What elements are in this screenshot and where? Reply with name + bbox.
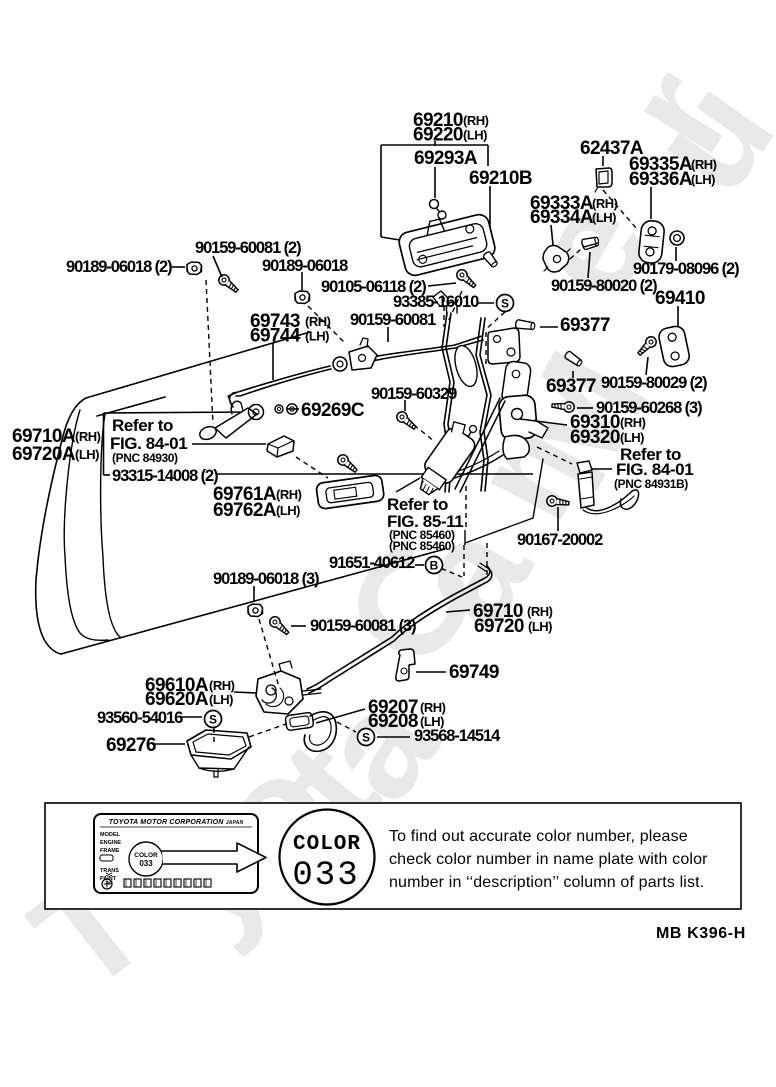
svg-text:69334A: 69334A bbox=[530, 207, 594, 228]
svg-text:69276: 69276 bbox=[106, 735, 156, 756]
svg-text:(LH): (LH) bbox=[75, 447, 99, 462]
svg-text:90189-06018 (3): 90189-06018 (3) bbox=[213, 570, 319, 588]
svg-text:S: S bbox=[362, 731, 370, 745]
svg-text:(PNC 84931B): (PNC 84931B) bbox=[614, 477, 688, 491]
svg-text:69720: 69720 bbox=[474, 616, 524, 637]
svg-text:(LH): (LH) bbox=[592, 210, 616, 225]
svg-text:(RH): (RH) bbox=[463, 113, 489, 128]
svg-text:(LH): (LH) bbox=[209, 692, 233, 707]
svg-text:69620A: 69620A bbox=[145, 689, 209, 710]
svg-text:93560-54016: 93560-54016 bbox=[97, 709, 183, 727]
svg-text:69336A: 69336A bbox=[629, 169, 693, 190]
svg-text:69410: 69410 bbox=[655, 288, 705, 309]
svg-text:(RH): (RH) bbox=[592, 196, 618, 211]
svg-text:90159-80029 (2): 90159-80029 (2) bbox=[601, 374, 707, 392]
svg-text:93385-16010: 93385-16010 bbox=[393, 293, 479, 311]
svg-text:(LH): (LH) bbox=[305, 329, 329, 344]
svg-text:COLOR: COLOR bbox=[293, 833, 361, 856]
svg-text:Refer to: Refer to bbox=[112, 416, 173, 435]
svg-text:(RH): (RH) bbox=[305, 314, 331, 329]
svg-text:93568-14514: 93568-14514 bbox=[414, 727, 501, 745]
svg-text:033: 033 bbox=[139, 859, 153, 868]
svg-text:90189-06018: 90189-06018 bbox=[262, 257, 348, 275]
svg-text:69220: 69220 bbox=[413, 125, 463, 146]
svg-text:(PNC 84930): (PNC 84930) bbox=[112, 451, 178, 465]
svg-text:TRANS: TRANS bbox=[100, 868, 119, 874]
svg-text:69377: 69377 bbox=[560, 315, 610, 336]
svg-text:69720A: 69720A bbox=[12, 444, 76, 465]
svg-text:B: B bbox=[430, 559, 439, 573]
svg-text:69320: 69320 bbox=[570, 427, 620, 448]
svg-text:TOYOTA MOTOR CORPORATION JAPAN: TOYOTA MOTOR CORPORATION JAPAN bbox=[109, 819, 244, 826]
svg-text:check color number in name pla: check color number in name plate with co… bbox=[389, 851, 708, 868]
svg-text:MB K396-H: MB K396-H bbox=[656, 925, 746, 942]
svg-text:(RH): (RH) bbox=[209, 678, 235, 693]
svg-text:ENGINE: ENGINE bbox=[100, 840, 121, 846]
svg-text:(RH): (RH) bbox=[527, 604, 553, 619]
svg-text:69210B: 69210B bbox=[469, 168, 532, 189]
svg-text:033: 033 bbox=[292, 857, 359, 895]
svg-text:(RH): (RH) bbox=[75, 429, 101, 444]
svg-text:90159-60329: 90159-60329 bbox=[371, 385, 457, 403]
svg-text:90179-08096 (2): 90179-08096 (2) bbox=[633, 260, 739, 278]
svg-text:(RH): (RH) bbox=[420, 700, 446, 715]
svg-text:(LH): (LH) bbox=[420, 714, 444, 729]
svg-text:(PNC 85460): (PNC 85460) bbox=[389, 539, 455, 553]
svg-text:90167-20002: 90167-20002 bbox=[517, 531, 603, 549]
svg-text:S: S bbox=[209, 713, 217, 727]
svg-text:69293A: 69293A bbox=[414, 148, 478, 169]
svg-text:(LH): (LH) bbox=[620, 430, 644, 445]
svg-text:69744: 69744 bbox=[250, 326, 301, 347]
svg-text:MODEL: MODEL bbox=[100, 832, 121, 838]
svg-text:69749: 69749 bbox=[449, 662, 499, 683]
svg-text:S: S bbox=[501, 297, 509, 311]
svg-text:To find out accurate color num: To find out accurate color number, pleas… bbox=[389, 828, 688, 845]
svg-text:(LH): (LH) bbox=[276, 503, 300, 518]
svg-text:69377: 69377 bbox=[546, 376, 596, 397]
svg-text:(RH): (RH) bbox=[620, 415, 646, 430]
svg-text:90159-80020 (2): 90159-80020 (2) bbox=[551, 277, 657, 295]
svg-text:FRAME: FRAME bbox=[100, 848, 120, 854]
svg-text:(LH): (LH) bbox=[691, 172, 715, 187]
svg-text:69762A: 69762A bbox=[213, 500, 277, 521]
svg-text:number in ‘‘description’’ colu: number in ‘‘description’’ column of part… bbox=[389, 874, 704, 891]
svg-text:90159-60081 (2): 90159-60081 (2) bbox=[195, 239, 301, 257]
svg-text:93315-14008 (2): 93315-14008 (2) bbox=[112, 467, 218, 485]
svg-text:90159-60081 (3): 90159-60081 (3) bbox=[310, 617, 416, 635]
svg-text:(LH): (LH) bbox=[528, 619, 552, 634]
svg-text:91651-40612: 91651-40612 bbox=[329, 554, 415, 572]
svg-text:69269C: 69269C bbox=[301, 400, 365, 421]
svg-text:(RH): (RH) bbox=[691, 157, 717, 172]
svg-text:COLOR: COLOR bbox=[134, 852, 158, 859]
svg-text:(RH): (RH) bbox=[276, 487, 302, 502]
svg-text:69208: 69208 bbox=[368, 711, 418, 732]
svg-text:90159-60081: 90159-60081 bbox=[350, 311, 436, 329]
svg-text:(LH): (LH) bbox=[463, 128, 487, 143]
svg-text:90189-06018 (2): 90189-06018 (2) bbox=[66, 258, 172, 276]
